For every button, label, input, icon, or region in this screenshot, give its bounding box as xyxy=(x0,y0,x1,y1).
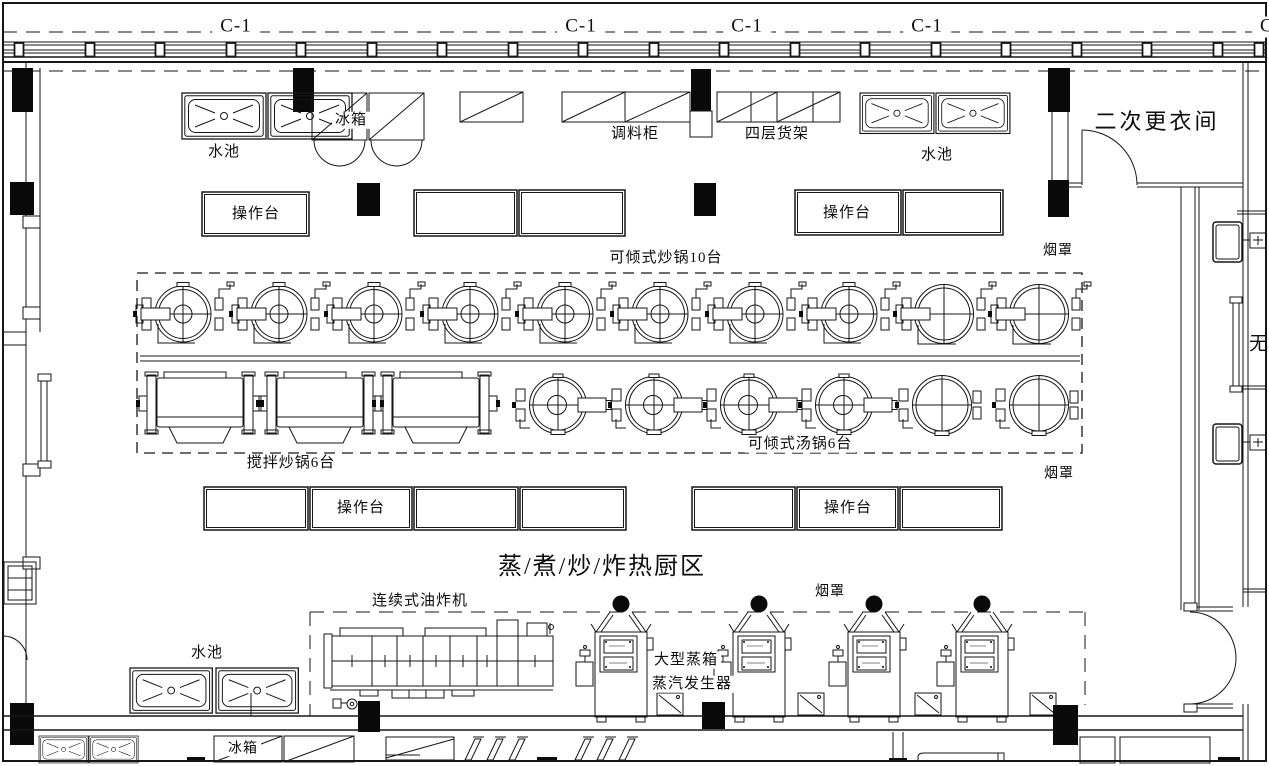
label-worktable: 操作台 xyxy=(820,205,874,222)
worktables-row2 xyxy=(204,487,1002,530)
steam-cabinet xyxy=(576,596,653,723)
label-hood: 烟罩 xyxy=(1041,466,1077,481)
label-fridge-bottom: 冰箱 xyxy=(225,741,261,756)
grid-label-c1: C-1 xyxy=(723,17,771,38)
top-window-wall xyxy=(3,32,1266,71)
tilt-rack xyxy=(465,737,528,760)
tilt-rack xyxy=(575,737,638,760)
sinks-top-right xyxy=(860,93,1010,133)
label-changing-room: 二次更衣间 xyxy=(1091,110,1222,134)
steam-cabinet xyxy=(714,596,791,723)
door-arc xyxy=(1190,658,1236,704)
sinks-bottom xyxy=(130,668,298,716)
steam-cabinet xyxy=(829,596,906,723)
label-sink-top-left: 水池 xyxy=(205,144,243,161)
double-door xyxy=(1184,603,1236,712)
left-wall xyxy=(3,62,51,745)
tilting-wok xyxy=(420,282,521,343)
cooking-equipment-zone xyxy=(133,273,1091,453)
changing-room-door-arc xyxy=(1082,130,1137,185)
label-sink-bottom: 水池 xyxy=(188,645,226,662)
label-right-partial: 无 xyxy=(1246,335,1269,356)
grid-label-c1-partial: C-1 xyxy=(1252,17,1269,38)
stirring-wok xyxy=(372,372,500,443)
tilting-wok xyxy=(324,282,425,343)
tilting-wok xyxy=(133,282,234,343)
tilting-wok xyxy=(705,282,806,343)
label-hood: 烟罩 xyxy=(812,584,848,599)
wash-fixture xyxy=(1213,424,1266,464)
tilting-wok xyxy=(515,282,616,343)
wash-fixture xyxy=(1213,222,1266,262)
tilting-wok-row xyxy=(133,282,1091,344)
label-hot-kitchen-zone: 蒸/煮/炒/炸热厨区 xyxy=(495,554,709,580)
stirring-wok xyxy=(256,372,384,443)
tilting-soup-pot xyxy=(798,374,897,435)
label-four-tier-shelf: 四层货架 xyxy=(742,126,812,143)
label-fridge-top: 冰箱 xyxy=(332,112,370,129)
label-worktable: 操作台 xyxy=(334,500,388,517)
tilting-soup-pot xyxy=(512,374,611,435)
seasoning-cabinet xyxy=(460,92,690,122)
tilting-soup-pot xyxy=(992,376,1078,436)
label-tilting-wok-count: 可倾式炒锅10台 xyxy=(606,250,725,267)
label-worktable: 操作台 xyxy=(821,500,875,517)
tilting-wok xyxy=(229,282,330,343)
continuous-fryer xyxy=(324,620,554,709)
right-wall xyxy=(1181,62,1266,762)
sinks-top-left xyxy=(182,93,352,139)
label-soup-pot-count: 可倾式汤锅6台 xyxy=(745,436,856,453)
tilting-wok xyxy=(893,282,996,344)
four-tier-shelf xyxy=(717,92,840,122)
tilting-soup-pot xyxy=(895,376,981,436)
changing-room-walls xyxy=(1048,68,1243,217)
tilting-wok xyxy=(610,282,711,343)
bottom-wall xyxy=(3,701,1243,745)
tilting-soup-pot xyxy=(703,374,802,435)
tilting-soup-pot xyxy=(608,374,707,435)
label-stirring-wok-count: 搅拌炒锅6台 xyxy=(244,455,339,472)
fridge-top xyxy=(312,93,424,166)
mixer-and-souppot-row xyxy=(136,372,1078,443)
grid-label-c1: C-1 xyxy=(212,17,260,38)
steam-cabinet xyxy=(937,596,1014,723)
worktables-row1 xyxy=(202,183,1003,236)
tilting-wok xyxy=(988,282,1091,344)
label-steam-cabinet: 大型蒸箱 xyxy=(651,652,721,669)
label-seasoning-cabinet: 调料柜 xyxy=(608,126,662,143)
tilting-wok xyxy=(799,282,900,343)
steam-cabinets xyxy=(576,596,1056,723)
label-worktable: 操作台 xyxy=(229,206,283,223)
grid-label-c1: C-1 xyxy=(903,17,951,38)
label-continuous-fryer: 连续式油炸机 xyxy=(369,593,471,610)
label-sink-top-right: 水池 xyxy=(918,147,956,164)
grid-label-c1: C-1 xyxy=(557,17,605,38)
label-hood: 烟罩 xyxy=(1040,243,1076,258)
door-arc xyxy=(1190,612,1236,658)
stirring-wok xyxy=(136,372,264,443)
label-steam-generator: 蒸汽发生器 xyxy=(649,676,735,693)
kitchen-floor-plan: C-1 C-1 C-1 C-1 C-1 水池 冰箱 调料柜 四层货架 水池 二次… xyxy=(0,0,1269,766)
